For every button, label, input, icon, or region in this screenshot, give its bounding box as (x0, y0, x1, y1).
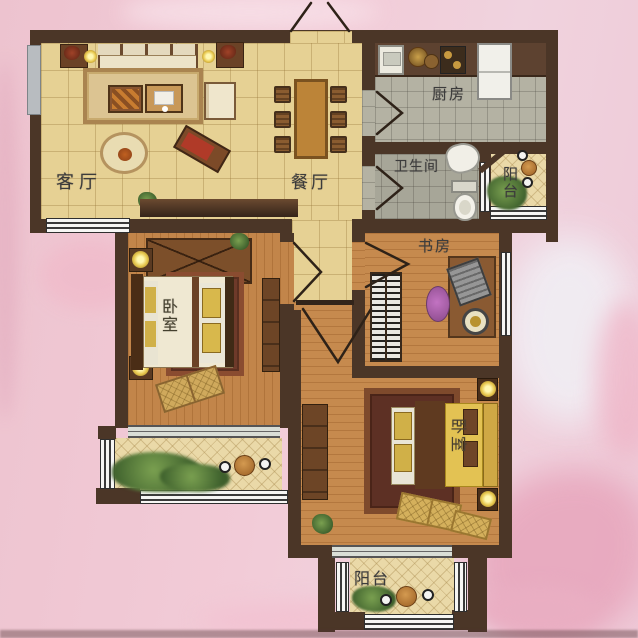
burner (453, 61, 461, 69)
dining-chair (274, 111, 291, 128)
wall-bedroom-right-left (288, 310, 301, 558)
dining-chair (274, 86, 291, 103)
bed-headboard-left (131, 274, 143, 370)
balcony-stool (522, 177, 533, 188)
floor-lamp-left (84, 50, 97, 63)
window-study-right (501, 252, 511, 336)
wall-right-outer (546, 30, 558, 242)
sofa-seat (100, 55, 196, 68)
living-rug (83, 68, 203, 124)
window-balcony-bottom-l (336, 562, 349, 612)
balcony-stool (422, 589, 434, 601)
table-lamp (480, 491, 496, 507)
petal-blur-bottom (480, 585, 600, 635)
bed-right-dark-band (415, 401, 445, 489)
entry-gap (290, 31, 352, 43)
dining-chair (330, 136, 347, 153)
globe-center (470, 316, 481, 327)
wall-south-bath (352, 219, 558, 233)
room-label-bedroom-right: 卧室 (448, 418, 472, 462)
refrigerator-divider (479, 71, 510, 73)
toilet-tank (451, 180, 478, 193)
window-living-bottom (46, 218, 130, 233)
stove (440, 46, 466, 74)
dining-chair (330, 111, 347, 128)
balcony-stool (380, 594, 392, 606)
wall-balcony-bottom-corner-l (335, 612, 365, 630)
window-balcony-bottom (364, 614, 454, 630)
coffee-table-pattern (112, 89, 139, 109)
accent-chair-purple (426, 286, 450, 322)
bed-cushion (145, 287, 156, 313)
room-label-bathroom: 卫生间 (394, 156, 439, 176)
wardrobe-bedroom-right (302, 404, 328, 500)
sliding-door-bedroom-right-balcony (332, 545, 452, 558)
sofa (98, 44, 198, 68)
background-top-light (120, 0, 380, 30)
cookware-small (424, 54, 439, 69)
chaise-divider (186, 376, 196, 401)
room-label-bedroom-left: 卧室 (156, 298, 180, 334)
balcony-table (521, 160, 537, 176)
kitchen-sink (378, 45, 404, 75)
wall-study-bottom (352, 366, 512, 378)
dining-table (294, 79, 328, 159)
kitchen-door-gap (362, 90, 375, 136)
balcony-stool (219, 461, 231, 473)
globe (462, 308, 489, 335)
bathroom-door-gap (362, 166, 375, 210)
wall-bedroom-left-left (115, 233, 128, 428)
sink-basin (383, 52, 401, 66)
wall-balcony-left-top (98, 426, 116, 439)
plant-bedroom-left (230, 233, 249, 250)
bed-gold-cushion (394, 412, 412, 440)
room-label-living: 客厅 (56, 168, 102, 194)
dining-chair (274, 136, 291, 153)
round-rug (100, 132, 148, 174)
sofa-back-cushions (98, 44, 198, 55)
bed-gold-pillow (202, 288, 221, 318)
photo-bottom-edge (0, 630, 638, 638)
room-label-balcony-right: 阳台 (500, 166, 521, 200)
bed-dark-band (192, 277, 199, 367)
wardrobe-right (262, 278, 280, 372)
room-label-dining: 餐厅 (291, 168, 331, 193)
background-left-strip (0, 60, 18, 420)
corridor-floor (292, 220, 352, 302)
room-label-balcony-bottom: 阳台 (354, 565, 390, 589)
bed-gold-pillow (202, 323, 221, 353)
window-balcony-left-bottom (140, 490, 288, 504)
room-label-kitchen: 厨房 (432, 83, 466, 104)
balcony-table (234, 455, 255, 476)
floor-plan-photo: 客厅 餐厅 厨房 卫生间 阳台 书房 卧室 卧室 阳台 (0, 0, 638, 638)
wall-balcony-bottom-corner-r (452, 610, 480, 630)
bench-divider (427, 500, 434, 524)
coffee-table-right (145, 84, 183, 113)
dining-chair (330, 86, 347, 103)
bed-gold-cushion (394, 444, 412, 472)
room-label-study: 书房 (418, 235, 452, 256)
toilet-bowl (453, 193, 477, 221)
bedroom-right-alcove-floor (294, 302, 352, 366)
floor-lamp-right (202, 50, 215, 63)
burner (444, 51, 452, 59)
study-door-gap (352, 242, 365, 290)
corridor-threshold (296, 300, 354, 305)
bookshelf-divider (385, 274, 387, 360)
armchair (204, 82, 236, 120)
bed-headboard-right (483, 403, 498, 487)
tv-cabinet (140, 199, 298, 217)
table-lamp (132, 251, 149, 268)
refrigerator (477, 43, 512, 100)
bedroom-left-door-gap (280, 242, 294, 304)
round-rug-flower (118, 148, 132, 161)
bowl (162, 106, 168, 112)
wall-balcony-left-corner (96, 488, 140, 504)
table-lamp (480, 381, 496, 397)
coffee-table-left (108, 85, 143, 113)
window-living-left (27, 45, 41, 115)
balcony-table (396, 586, 417, 607)
bed-cushion (145, 321, 156, 347)
balcony-stool (259, 458, 271, 470)
magazine (154, 91, 174, 105)
wall-balcony-bottom-left (318, 558, 335, 632)
toilet-seat (459, 200, 471, 215)
bookshelf (370, 272, 402, 362)
window-balcony-bottom-r (454, 562, 467, 612)
sliding-door-bedroom-left-balcony (128, 425, 280, 438)
plant-bedroom-right (312, 514, 333, 534)
bed-frame-edge (225, 277, 234, 367)
